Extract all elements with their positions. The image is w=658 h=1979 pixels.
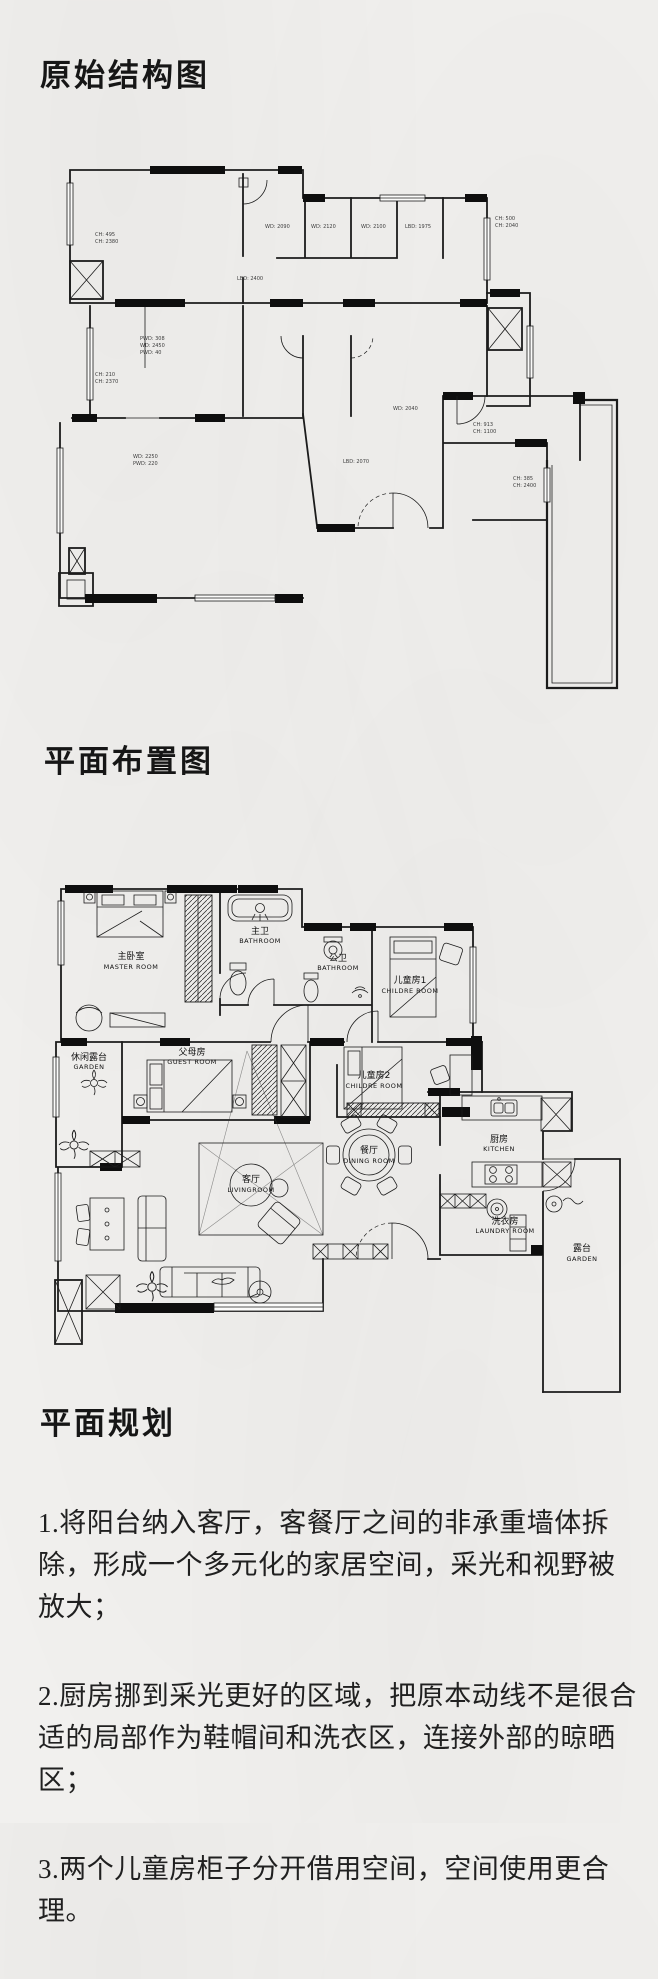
bird-decor-icon [212, 1278, 234, 1284]
svg-text:CH: 495: CH: 495 [95, 232, 115, 238]
svg-text:CH: 500: CH: 500 [495, 216, 515, 222]
room-label-kitchen: 厨房KITCHEN [483, 1133, 515, 1153]
lounge-chair-icon [76, 1005, 165, 1031]
svg-text:儿童房1: 儿童房1 [394, 974, 427, 986]
room-label-living: 客厅LIVINGROOM [227, 1173, 274, 1194]
svg-text:MASTER ROOM: MASTER ROOM [104, 963, 159, 971]
section-title-planning: 平面规划 [40, 1398, 176, 1443]
cabinet-icon [86, 1275, 120, 1309]
cabinet-icon [281, 1045, 306, 1117]
svg-text:儿童房2: 儿童房2 [358, 1069, 391, 1081]
bed-icon [134, 1060, 246, 1112]
plant-icon [59, 1070, 107, 1159]
svg-text:休闲露台: 休闲露台 [71, 1051, 107, 1063]
svg-text:CH: 913: CH: 913 [473, 422, 493, 428]
furniture-layout-drawing: 主卧室MASTER ROOM 主卫BATHROOM 公卫BATHROOM 儿童房… [42, 855, 622, 1400]
elevator-shaft-icon [55, 1280, 82, 1344]
door-arc-icon [239, 178, 485, 528]
svg-text:餐厅: 餐厅 [360, 1144, 378, 1156]
room-label-master: 主卧室MASTER ROOM [104, 950, 159, 971]
svg-text:DINING ROOM: DINING ROOM [343, 1157, 395, 1165]
svg-text:CH: 2380: CH: 2380 [95, 239, 118, 245]
svg-text:WD: 2040: WD: 2040 [393, 406, 418, 412]
room-label-leisure-garden: 休闲露台GARDEN [71, 1051, 107, 1071]
svg-text:LBD: 2400: LBD: 2400 [237, 276, 263, 282]
furniture-layout-floorplan: 主卧室MASTER ROOM 主卫BATHROOM 公卫BATHROOM 儿童房… [42, 855, 622, 1400]
svg-text:厨房: 厨房 [490, 1133, 508, 1145]
svg-text:公卫: 公卫 [329, 953, 347, 964]
svg-text:LBD: 1975: LBD: 1975 [405, 224, 431, 230]
walls [59, 170, 617, 688]
foyer-cabinet-icon [313, 1244, 388, 1259]
svg-text:CH: 2400: CH: 2400 [513, 483, 536, 489]
svg-text:CHILDRE ROOM: CHILDRE ROOM [381, 987, 438, 995]
room-label-children-2: 儿童房2CHILDRE ROOM [345, 1069, 402, 1090]
wardrobe-icon [252, 1045, 277, 1115]
svg-text:主卫: 主卫 [251, 925, 269, 937]
svg-text:CH: 385: CH: 385 [513, 476, 533, 482]
svg-text:PWD: 40: PWD: 40 [140, 350, 161, 356]
svg-text:PWD: 220: PWD: 220 [133, 461, 158, 467]
shower-icon [352, 987, 368, 998]
garden-drain-icon [546, 1196, 583, 1212]
room-label-terrace: 露台GARDEN [567, 1242, 598, 1263]
svg-text:LBD: 2070: LBD: 2070 [343, 459, 369, 465]
section-title-furniture-layout: 平面布置图 [44, 736, 214, 781]
planning-note-3: 3.两个儿童房柜子分开借用空间，空间使用更合理。 [38, 1848, 638, 1932]
svg-text:PWD: 308: PWD: 308 [140, 336, 165, 342]
svg-text:GUEST ROOM: GUEST ROOM [167, 1058, 216, 1066]
planning-notes: 1.将阳台纳入客厅，客餐厅之间的非承重墙体拆除，形成一个多元化的家居空间，采光和… [38, 1502, 638, 1979]
svg-text:WD: 2100: WD: 2100 [361, 224, 386, 230]
svg-text:CHILDRE ROOM: CHILDRE ROOM [345, 1082, 402, 1090]
svg-text:LIVINGROOM: LIVINGROOM [227, 1186, 274, 1194]
svg-text:洗衣房: 洗衣房 [491, 1215, 518, 1227]
svg-text:CH: 210: CH: 210 [95, 372, 115, 378]
svg-text:GARDEN: GARDEN [74, 1063, 105, 1071]
bed-icon [84, 891, 176, 937]
svg-text:CH: 1100: CH: 1100 [473, 429, 496, 435]
svg-text:客厅: 客厅 [242, 1173, 260, 1185]
svg-text:WD: 2120: WD: 2120 [311, 224, 336, 230]
svg-text:BATHROOM: BATHROOM [239, 937, 281, 945]
svg-text:露台: 露台 [573, 1242, 591, 1254]
closet-strip-icon [347, 1103, 439, 1117]
svg-text:LAUNDRY ROOM: LAUNDRY ROOM [475, 1227, 534, 1235]
section-title-original-structure: 原始结构图 [40, 50, 210, 95]
armchair-icon [256, 1200, 301, 1245]
side-table-icon [76, 1198, 124, 1250]
original-structure-drawing: CH: 495 CH: 2380 PWD: 308 WD: 2450 PWD: … [45, 128, 620, 703]
svg-text:BATHROOM: BATHROOM [317, 964, 359, 972]
toilet-icon [230, 963, 246, 995]
svg-text:父母房: 父母房 [178, 1046, 205, 1058]
svg-text:GARDEN: GARDEN [567, 1255, 598, 1263]
svg-text:WD: 2090: WD: 2090 [265, 224, 290, 230]
bathtub-icon [228, 895, 292, 921]
wardrobe-icon [185, 895, 212, 1002]
room-label-guest: 父母房GUEST ROOM [167, 1046, 216, 1066]
planning-note-2: 2.厨房挪到采光更好的区域，把原本动线不是很合适的局部作为鞋帽间和洗衣区，连接外… [38, 1675, 638, 1801]
svg-text:主卧室: 主卧室 [117, 950, 144, 962]
svg-text:CH: 2370: CH: 2370 [95, 379, 118, 385]
dimension-labels: CH: 495 CH: 2380 PWD: 308 WD: 2450 PWD: … [95, 216, 536, 489]
room-label-public-bath: 公卫BATHROOM [317, 953, 359, 972]
cabinet-icon [90, 1151, 140, 1167]
load-bearing-wall-fills [72, 166, 585, 603]
planning-note-1: 1.将阳台纳入客厅，客餐厅之间的非承重墙体拆除，形成一个多元化的家居空间，采光和… [38, 1502, 638, 1628]
svg-text:WD: 2450: WD: 2450 [140, 343, 165, 349]
kitchen-counter-icon [462, 1096, 571, 1187]
design-presentation-page: { "page": { "background": "#f1f0ee", "in… [0, 0, 658, 1823]
original-structure-floorplan: CH: 495 CH: 2380 PWD: 308 WD: 2450 PWD: … [45, 128, 620, 703]
svg-text:CH: 2040: CH: 2040 [495, 223, 518, 229]
toilet-icon [304, 973, 318, 1002]
desk-chair-icon [439, 942, 464, 965]
svg-text:WD: 2250: WD: 2250 [133, 454, 158, 460]
svg-text:KITCHEN: KITCHEN [483, 1145, 515, 1153]
room-label-master-bath: 主卫BATHROOM [239, 925, 281, 945]
